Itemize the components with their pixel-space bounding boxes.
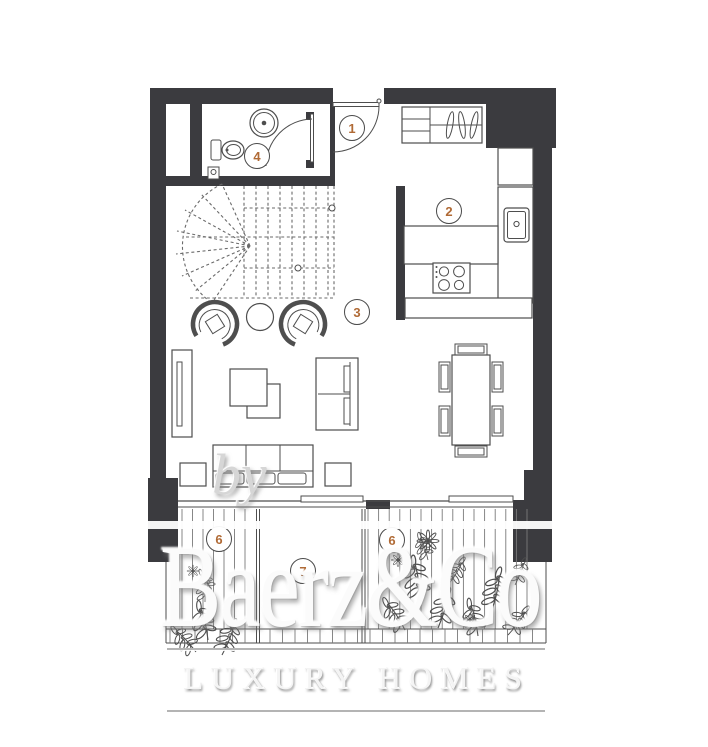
room-number: 1 — [348, 121, 355, 136]
side-table-icon — [180, 463, 206, 486]
shaft — [498, 148, 533, 185]
tv-unit-icon — [172, 350, 192, 437]
dining-table-icon — [452, 355, 490, 445]
wardrobe — [402, 107, 482, 143]
dining-set — [439, 344, 503, 457]
loveseat-icon — [316, 358, 358, 430]
toilet-roll-holder-icon — [208, 167, 219, 179]
watermark-tagline: LUXURY HOMES — [168, 662, 546, 694]
kitchen — [404, 148, 533, 318]
coffee-tables-icon — [230, 369, 280, 418]
window-sill — [449, 496, 513, 502]
watermark-rule-top — [167, 648, 545, 650]
room-number: 2 — [445, 204, 452, 219]
room-number: 3 — [353, 305, 360, 320]
toilet-icon — [211, 140, 244, 160]
room-label-entrance: 1 — [339, 115, 365, 141]
spiral-staircase — [176, 184, 335, 303]
round-side-table-icon — [247, 304, 274, 331]
watermark-brand: Baerz&Co — [160, 528, 541, 646]
armchair-icon — [189, 296, 243, 347]
floor-plan: 1 2 3 4 6 6 7 by Baerz&Co LUXURY HOMES — [0, 0, 708, 747]
watermark-by: by — [212, 446, 267, 504]
stove-icon — [433, 263, 470, 293]
bathroom-door-icon — [266, 114, 314, 166]
kitchen-counter-top — [404, 226, 498, 264]
kitchen-island — [405, 298, 532, 318]
room-number: 4 — [253, 149, 260, 164]
room-label-living-room: 3 — [344, 299, 370, 325]
kitchen-counter-right — [498, 187, 533, 303]
watermark-rule-bottom — [167, 710, 545, 712]
washbasin-icon — [250, 109, 278, 137]
room-label-bathroom: 4 — [244, 143, 270, 169]
room-label-kitchen: 2 — [436, 198, 462, 224]
window-sill — [301, 496, 363, 502]
side-table-icon — [325, 463, 351, 486]
armchair-icon — [275, 296, 329, 347]
